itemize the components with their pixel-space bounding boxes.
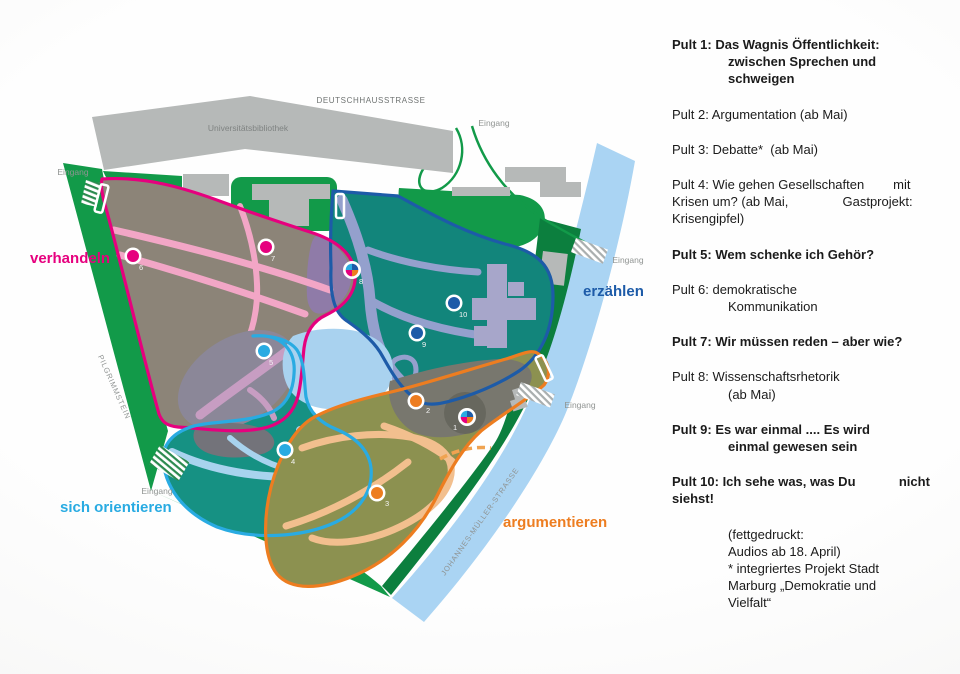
legend-item-line: einmal gewesen sein xyxy=(672,438,940,455)
legend-item-line: Pult 10: Ich sehe was, was Du nicht xyxy=(672,473,940,490)
entrance-label-right: Eingang xyxy=(612,255,643,265)
entrance-label-top-left: Eingang xyxy=(57,167,88,177)
library-building xyxy=(92,96,453,173)
legend-item-line: zwischen Sprechen und xyxy=(672,53,940,70)
legend-item-line: Pult 5: Wem schenke ich Gehör? xyxy=(672,246,940,263)
legend-item-pult-6: Pult 6: demokratischeKommunikation xyxy=(672,281,940,315)
library-label: Universitätsbibliothek xyxy=(208,123,289,133)
legend-footnote-line: Marburg „Demokratie und xyxy=(728,577,940,594)
legend-item-pult-9: Pult 9: Es war einmal .... Es wirdeinmal… xyxy=(672,421,940,455)
legend-footnote-line: Audios ab 18. April) xyxy=(728,543,940,560)
legend-item-line: Pult 6: demokratische xyxy=(672,281,940,298)
legend-item-pult-3: Pult 3: Debatte* (ab Mai) xyxy=(672,141,940,158)
legend-item-line: Pult 7: Wir müssen reden – aber wie? xyxy=(672,333,940,350)
svg-text:2: 2 xyxy=(426,406,430,415)
svg-text:4: 4 xyxy=(291,457,295,466)
legend-item-pult-5: Pult 5: Wem schenke ich Gehör? xyxy=(672,246,940,263)
legend-item-pult-10: Pult 10: Ich sehe was, was Du nichtsiehs… xyxy=(672,473,940,507)
legend-item-line: Pult 9: Es war einmal .... Es wird xyxy=(672,421,940,438)
legend-item-line: siehst! xyxy=(672,490,940,507)
legend-items: Pult 1: Das Wagnis Öffentlichkeit:zwisch… xyxy=(672,36,940,508)
entrance-label-top-right: Eingang xyxy=(478,118,509,128)
svg-text:9: 9 xyxy=(422,340,426,349)
svg-text:10: 10 xyxy=(459,310,467,319)
legend-item-line: (ab Mai) xyxy=(672,386,940,403)
legend-item-pult-2: Pult 2: Argumentation (ab Mai) xyxy=(672,106,940,123)
legend-item-line: schweigen xyxy=(672,70,940,87)
legend-item-line: Kommunikation xyxy=(672,298,940,315)
svg-text:8: 8 xyxy=(359,277,363,286)
legend-footnote-line: Vielfalt“ xyxy=(728,594,940,611)
svg-text:3: 3 xyxy=(385,499,389,508)
legend: Pult 1: Das Wagnis Öffentlichkeit:zwisch… xyxy=(672,36,940,612)
legend-item-pult-1: Pult 1: Das Wagnis Öffentlichkeit:zwisch… xyxy=(672,36,940,88)
park-map: 1 2 3 4 5 6 xyxy=(0,0,660,674)
svg-text:1: 1 xyxy=(453,423,457,432)
entrance-label-right-lower: Eingang xyxy=(564,400,595,410)
svg-text:7: 7 xyxy=(271,254,275,263)
legend-item-pult-4: Pult 4: Wie gehen Gesellschaften mitKris… xyxy=(672,176,940,228)
zone-label-verhandeln: verhandeln xyxy=(30,250,110,267)
street-label-deutschhausstrasse: DEUTSCHHAUSSTRASSE xyxy=(316,96,425,105)
legend-footnote-line: (fettgedruckt: xyxy=(728,526,940,543)
legend-item-line: Pult 8: Wissenschaftsrhetorik xyxy=(672,368,940,385)
legend-item-line: Krisengipfel) xyxy=(672,210,940,227)
svg-text:5: 5 xyxy=(269,358,273,367)
zone-label-sich-orientieren: sich orientieren xyxy=(60,499,172,516)
zone-label-argumentieren: argumentieren xyxy=(503,514,607,531)
legend-footnote: (fettgedruckt:Audios ab 18. April)* inte… xyxy=(672,526,940,612)
legend-footnote-line: * integriertes Projekt Stadt xyxy=(728,560,940,577)
legend-item-pult-8: Pult 8: Wissenschaftsrhetorik(ab Mai) xyxy=(672,368,940,402)
legend-item-line: Pult 3: Debatte* (ab Mai) xyxy=(672,141,940,158)
legend-item-pult-7: Pult 7: Wir müssen reden – aber wie? xyxy=(672,333,940,350)
legend-item-line: Krisen um? (ab Mai, Gastprojekt: xyxy=(672,193,940,210)
legend-item-line: Pult 4: Wie gehen Gesellschaften mit xyxy=(672,176,940,193)
legend-item-line: Pult 1: Das Wagnis Öffentlichkeit: xyxy=(672,36,940,53)
svg-text:6: 6 xyxy=(139,263,143,272)
legend-item-line: Pult 2: Argumentation (ab Mai) xyxy=(672,106,940,123)
entrance-label-bottom-left: Eingang xyxy=(141,486,172,496)
zone-label-erzaehlen: erzählen xyxy=(583,283,644,300)
